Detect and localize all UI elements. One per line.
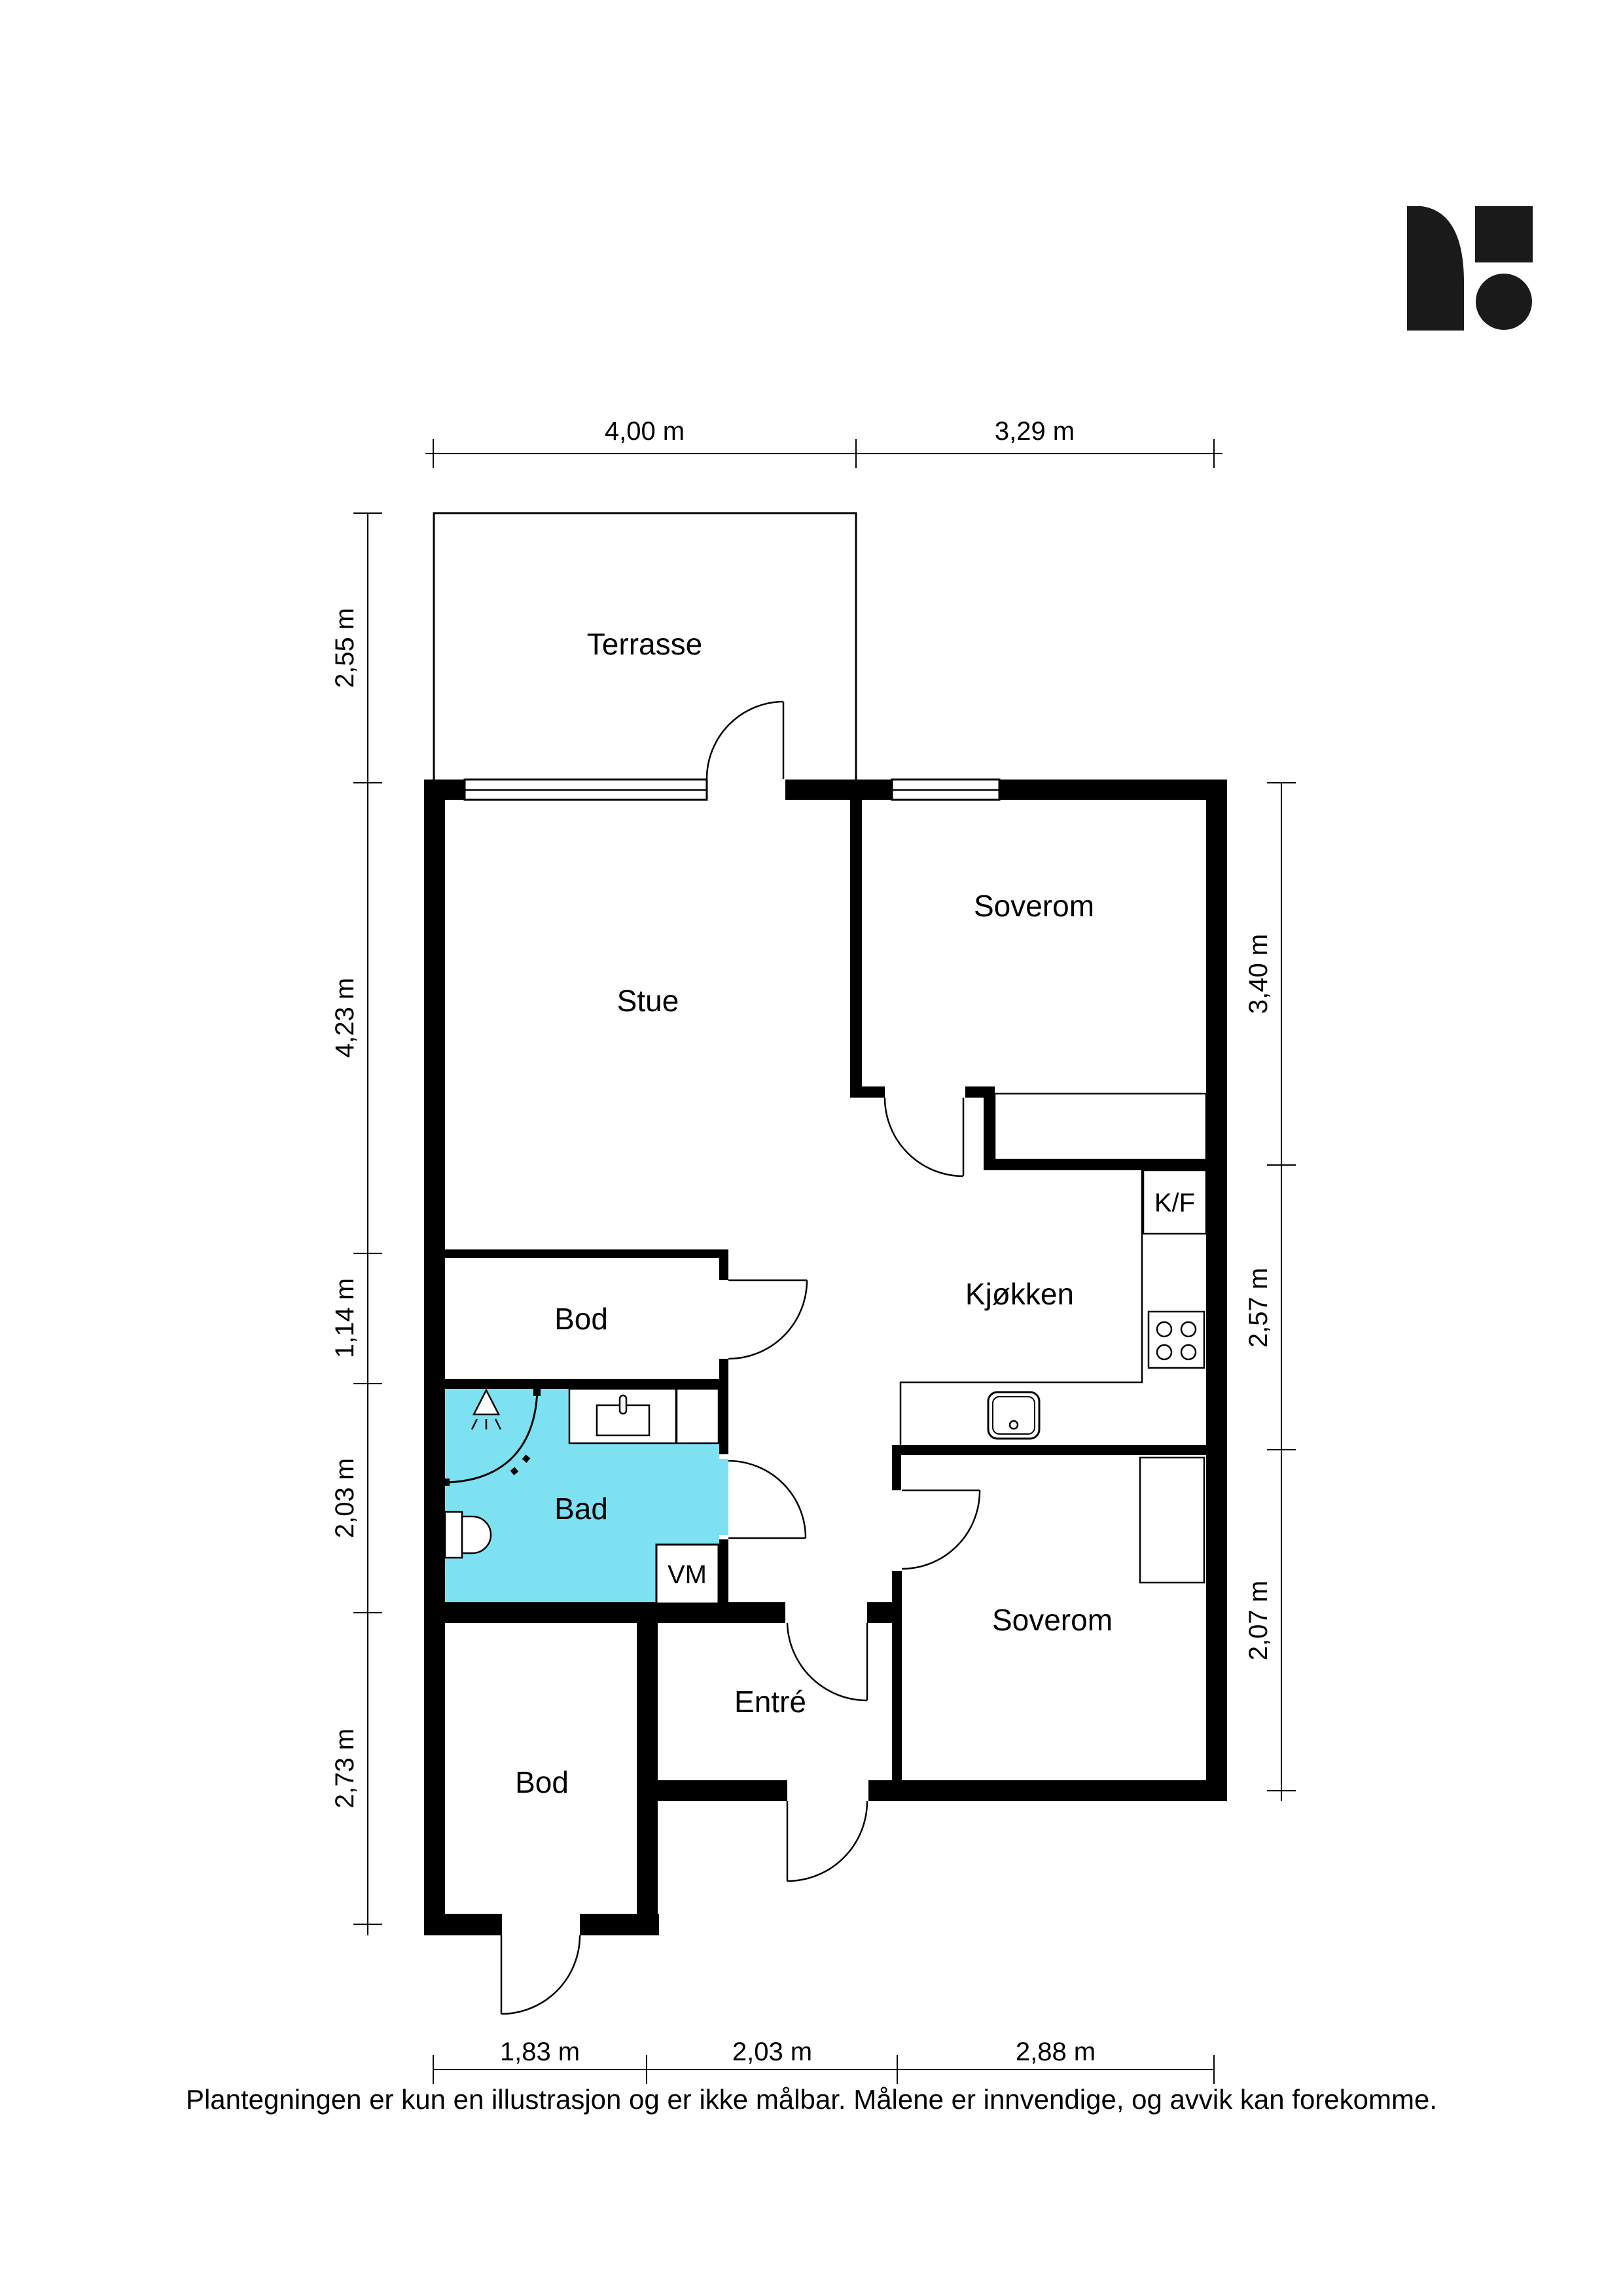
wall-kitchen-bottom (892, 1445, 1206, 1455)
wall-bad-bottom (445, 1602, 785, 1623)
room-label-terrasse: Terrasse (587, 627, 702, 661)
bad-floor-door-notch (719, 1459, 728, 1535)
soverom1-wardrobe (995, 1094, 1206, 1160)
wall-stue-divider (850, 780, 862, 1086)
wall-bod1-top (445, 1249, 728, 1258)
wall-bad-right (719, 1539, 728, 1602)
room-label-kf: K/F (1154, 1189, 1195, 1217)
bad-door (728, 1461, 806, 1538)
bod1-door (728, 1280, 807, 1359)
wall-bad-top (445, 1379, 728, 1389)
bathroom-cabinet (677, 1389, 719, 1443)
wall-bod1-right-b (719, 1359, 728, 1454)
floorplan-page: Terrasse Stue Soverom Kjøkken K/F Bod Ba… (0, 0, 1623, 2296)
dim-bottom-2: 2,03 m (732, 2037, 812, 2066)
dim-bottom: 1,83 m 2,03 m 2,88 m (433, 2037, 1214, 2084)
wall-sov2-left (892, 1571, 902, 1780)
wall-left (424, 780, 445, 1935)
wall-top-c (999, 780, 1227, 800)
wall-bod1-right-a (719, 1249, 728, 1280)
room-label-bod2: Bod (515, 1765, 569, 1799)
dim-top: 4,00 m 3,29 m (425, 417, 1222, 468)
room-label-entre: Entré (734, 1685, 806, 1719)
bathroom-sink-icon (569, 1389, 676, 1443)
logo-arch-shape (1407, 206, 1464, 331)
dim-top-2: 3,29 m (995, 417, 1075, 446)
entry-door (787, 1801, 867, 1881)
room-label-stue: Stue (617, 984, 679, 1018)
room-label-vm: VM (668, 1560, 707, 1589)
kitchen-sink-icon (988, 1392, 1039, 1439)
doors (501, 702, 980, 2014)
dim-left-4: 2,03 m (330, 1458, 359, 1538)
floorplan-svg: Terrasse Stue Soverom Kjøkken K/F Bod Ba… (0, 0, 1623, 2296)
dim-left: 2,55 m 4,23 m 1,14 m 2,03 m 2,73 m (330, 513, 382, 1935)
wall-right (1206, 780, 1227, 1801)
room-label-soverom2: Soverom (992, 1603, 1113, 1637)
dim-right-1: 3,40 m (1244, 934, 1273, 1014)
wall-kitchen-left (892, 1445, 901, 1490)
soverom2-door (902, 1490, 980, 1569)
wall-bottom-right (868, 1780, 1227, 1801)
windows (465, 780, 999, 800)
logo-circle-shape (1476, 274, 1532, 330)
dim-right: 3,40 m 2,57 m 2,07 m (1244, 783, 1296, 1801)
dim-right-2: 2,57 m (1244, 1268, 1273, 1348)
room-label-bod1: Bod (554, 1302, 608, 1336)
room-label-kjokken: Kjøkken (965, 1277, 1074, 1311)
wall-bad-bottom-stub (867, 1602, 892, 1623)
dim-left-3: 1,14 m (330, 1278, 359, 1358)
brand-logo (1407, 206, 1533, 331)
logo-square-shape (1475, 206, 1533, 262)
dim-left-5: 2,73 m (330, 1729, 359, 1808)
footer-disclaimer: Plantegningen er kun en illustrasjon og … (186, 2084, 1437, 2115)
dim-top-1: 4,00 m (605, 417, 685, 446)
wall-sov1-step (984, 1086, 995, 1170)
wall-bod2-right (637, 1604, 658, 1935)
soverom1-door (885, 1098, 963, 1176)
wall-entre-bottom (658, 1780, 787, 1801)
stove-icon (1149, 1312, 1204, 1368)
dim-right-3: 2,07 m (1244, 1581, 1273, 1660)
bod2-door (501, 1935, 580, 2014)
walls (424, 780, 1227, 1935)
terrace-door (707, 702, 783, 779)
wall-sov1-bottom-c (984, 1160, 1206, 1170)
soverom2-closet (1140, 1458, 1204, 1583)
wall-top-b (785, 780, 892, 800)
dim-left-2: 4,23 m (330, 978, 359, 1058)
dim-bottom-3: 2,88 m (1016, 2037, 1096, 2066)
wall-bod2-bottom-a (424, 1914, 502, 1935)
dim-bottom-1: 1,83 m (500, 2037, 580, 2066)
wall-sov1-bottom-a (850, 1086, 885, 1098)
room-label-bad: Bad (554, 1492, 608, 1526)
room-label-soverom1: Soverom (974, 889, 1094, 923)
dim-left-1: 2,55 m (330, 608, 359, 688)
